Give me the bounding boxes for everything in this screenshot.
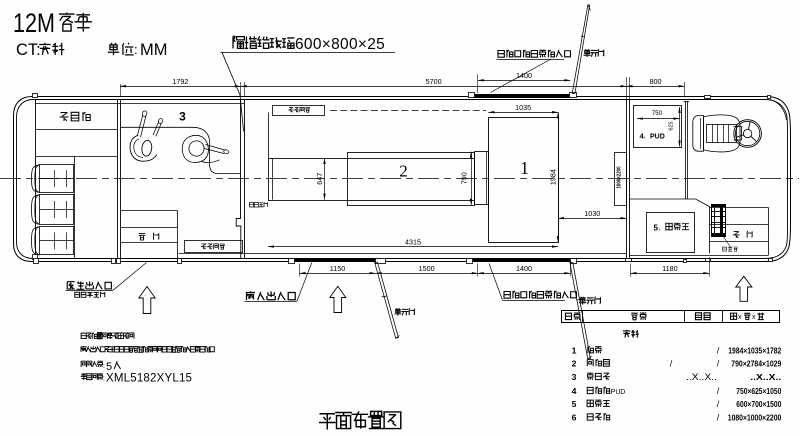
svg-text:,: , (659, 223, 661, 232)
svg-text:625: 625 (669, 121, 675, 130)
svg-text:647: 647 (315, 173, 324, 185)
svg-text:1984: 1984 (549, 169, 558, 185)
svg-text:5: 5 (106, 361, 112, 373)
svg-text:2: 2 (399, 162, 408, 181)
svg-text:1030: 1030 (584, 209, 600, 218)
svg-text:1500: 1500 (419, 264, 435, 273)
svg-text:,: , (644, 133, 646, 140)
svg-text:D: D (620, 389, 625, 396)
svg-text:1984×1035×1782: 1984×1035×1782 (728, 346, 781, 356)
svg-text:MM: MM (140, 41, 168, 59)
svg-text:1: 1 (572, 346, 577, 356)
svg-text:600×800×25: 600×800×25 (295, 36, 385, 53)
svg-text:x: x (738, 314, 742, 321)
svg-text:6: 6 (572, 413, 577, 423)
svg-text:x: x (752, 314, 756, 321)
svg-text:1080×1000×2200: 1080×1000×2200 (728, 413, 782, 423)
svg-text:3: 3 (179, 110, 186, 124)
svg-text::: : (103, 376, 105, 383)
svg-text:5: 5 (654, 224, 659, 233)
svg-text:XML5182XYL15: XML5182XYL15 (106, 373, 192, 385)
svg-text:1400: 1400 (516, 264, 532, 273)
svg-text:4: 4 (572, 386, 577, 396)
svg-text:750: 750 (652, 110, 663, 117)
svg-text:1000×2200: 1000×2200 (617, 166, 623, 188)
svg-text:790×2784×1029: 790×2784×1029 (731, 359, 781, 369)
svg-text:1400: 1400 (516, 71, 532, 80)
svg-text:PUD: PUD (650, 134, 665, 141)
svg-text:790: 790 (460, 172, 469, 184)
svg-text:1792: 1792 (172, 77, 188, 86)
svg-text:750×625×1050: 750×625×1050 (736, 386, 781, 396)
svg-text:2: 2 (572, 359, 577, 369)
svg-text:600×700×1500: 600×700×1500 (736, 399, 781, 409)
svg-text:4315: 4315 (405, 237, 421, 246)
svg-text:1180: 1180 (662, 264, 677, 273)
svg-text:1035: 1035 (515, 103, 531, 112)
svg-text::: : (103, 363, 105, 370)
svg-text:1: 1 (520, 158, 529, 178)
svg-text:800: 800 (650, 77, 662, 86)
svg-text:5: 5 (572, 399, 577, 409)
svg-text:..X..X..: ..X..X.. (686, 372, 717, 382)
svg-text::: : (134, 42, 138, 57)
svg-text:CT:: CT: (16, 41, 41, 59)
svg-text:1150: 1150 (330, 264, 345, 273)
svg-text:5700: 5700 (426, 77, 442, 86)
svg-text:..X..X..: ..X..X.. (750, 372, 781, 382)
svg-text:3: 3 (572, 372, 577, 382)
svg-text:12M: 12M (13, 8, 55, 38)
